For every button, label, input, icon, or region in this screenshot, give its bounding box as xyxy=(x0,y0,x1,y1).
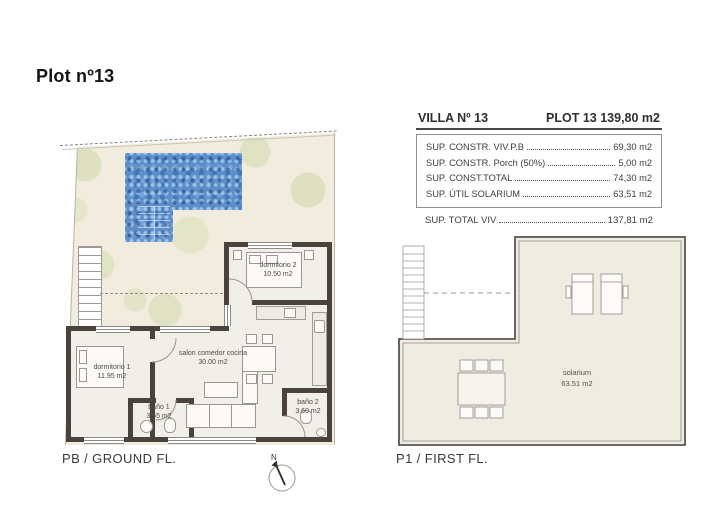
row-value: 74,30 m2 xyxy=(613,171,652,187)
chair xyxy=(460,407,473,418)
sink xyxy=(314,320,325,333)
window xyxy=(96,326,130,333)
chair xyxy=(475,407,488,418)
chair xyxy=(262,334,273,344)
window xyxy=(84,437,124,444)
row-value: 63,51 m2 xyxy=(613,187,652,203)
chair xyxy=(490,360,503,371)
coffee-table xyxy=(204,382,238,398)
summary-table: VILLA Nº 13 PLOT 13 139,80 m2 SUP. CONST… xyxy=(416,111,662,229)
room-area: 3.60 m2 xyxy=(288,407,328,416)
north-arrow xyxy=(276,465,285,485)
wall xyxy=(282,388,287,416)
room-label-dormitorio1: dormitorio 1 11.95 m2 xyxy=(78,363,146,381)
row-label: SUP. CONSTR. Porch (50%) xyxy=(426,156,545,172)
first-floor-drawing: solarium 63.51 m2 xyxy=(396,234,688,448)
room-name: dormitorio 1 xyxy=(78,363,146,372)
side-table xyxy=(566,286,571,298)
row-label: SUP. CONST.TOTAL xyxy=(426,171,512,187)
caption-first-floor: P1 / FIRST FL. xyxy=(396,451,488,466)
stairs-first xyxy=(403,246,424,339)
window xyxy=(248,242,292,249)
sun-lounger xyxy=(572,274,593,314)
sliding-door xyxy=(168,437,256,444)
wall xyxy=(252,300,332,305)
room-name: salon comedor cocina xyxy=(165,349,261,358)
total-value: 137,81 m2 xyxy=(608,213,653,229)
pool-steps xyxy=(138,206,170,240)
wall xyxy=(224,242,229,305)
table-total-row: SUP. TOTAL VIV 137,81 m2 xyxy=(416,213,662,229)
row-value: 5,00 m2 xyxy=(618,156,652,172)
chair xyxy=(246,334,257,344)
table-row: SUP. CONSTR. VIV.P.B 69,30 m2 xyxy=(426,140,652,156)
room-name: dormitorio 2 xyxy=(238,261,318,270)
chair xyxy=(246,374,257,384)
nightstand xyxy=(233,250,242,260)
upper-floor-outline-dashed xyxy=(100,293,223,294)
table-row: SUP. ÚTIL SOLARIUM 63,51 m2 xyxy=(426,187,652,203)
room-area: 10.50 m2 xyxy=(238,270,318,279)
dot-leader xyxy=(523,196,610,197)
stairs-ground xyxy=(78,246,102,334)
compass-icon: N xyxy=(258,448,302,498)
chair xyxy=(475,360,488,371)
summary-box: SUP. CONSTR. VIV.P.B 69,30 m2 SUP. CONST… xyxy=(416,134,662,208)
wall xyxy=(128,398,133,442)
hob xyxy=(284,308,296,318)
room-name: baño 1 xyxy=(136,403,182,412)
plan-sheet: Plot nº13 xyxy=(0,0,705,528)
solarium-outline xyxy=(399,237,685,445)
pillow xyxy=(79,350,87,364)
chair xyxy=(262,374,273,384)
room-area: 30.00 m2 xyxy=(165,358,261,367)
room-label-dormitorio2: dormitorio 2 10.50 m2 xyxy=(238,261,318,279)
nightstand xyxy=(304,250,314,260)
dot-leader xyxy=(499,222,604,223)
table-row: SUP. CONST.TOTAL 74,30 m2 xyxy=(426,171,652,187)
plot-label: PLOT 13 139,80 m2 xyxy=(546,111,660,125)
room-label-bano2: baño 2 3.60 m2 xyxy=(288,398,328,416)
row-value: 69,30 m2 xyxy=(613,140,652,156)
room-area: 63.51 m2 xyxy=(561,379,592,388)
dining-table xyxy=(458,373,505,405)
row-label: SUP. ÚTIL SOLARIUM xyxy=(426,187,520,203)
villa-label: VILLA Nº 13 xyxy=(418,111,488,125)
room-name: solarium xyxy=(563,368,591,377)
wall xyxy=(66,326,71,442)
window xyxy=(160,326,210,333)
room-label-bano1: baño 1 3.55 m2 xyxy=(136,403,182,421)
room-area: 11.95 m2 xyxy=(78,372,146,381)
kitchen-counter xyxy=(256,306,306,320)
summary-header: VILLA Nº 13 PLOT 13 139,80 m2 xyxy=(416,111,662,130)
page-title: Plot nº13 xyxy=(36,66,114,87)
caption-ground-floor: PB / GROUND FL. xyxy=(62,451,176,466)
total-label: SUP. TOTAL VIV xyxy=(425,213,496,229)
wall xyxy=(282,388,332,393)
dot-leader xyxy=(515,180,610,181)
room-label-salon: salon comedor cocina 30.00 m2 xyxy=(165,349,261,367)
table-row: SUP. CONSTR. Porch (50%) 5,00 m2 xyxy=(426,156,652,172)
side-table xyxy=(623,286,628,298)
chair xyxy=(460,360,473,371)
washbasin xyxy=(316,428,326,437)
window xyxy=(224,305,231,326)
compass-north-label: N xyxy=(271,453,277,462)
row-label: SUP. CONSTR. VIV.P.B xyxy=(426,140,524,156)
wall xyxy=(150,331,155,339)
dot-leader xyxy=(548,165,615,166)
sun-lounger xyxy=(601,274,622,314)
washbasin xyxy=(140,420,153,433)
room-name: baño 2 xyxy=(288,398,328,407)
dot-leader xyxy=(527,149,610,150)
sofa xyxy=(186,404,256,428)
chair xyxy=(490,407,503,418)
room-area: 3.55 m2 xyxy=(136,412,182,421)
